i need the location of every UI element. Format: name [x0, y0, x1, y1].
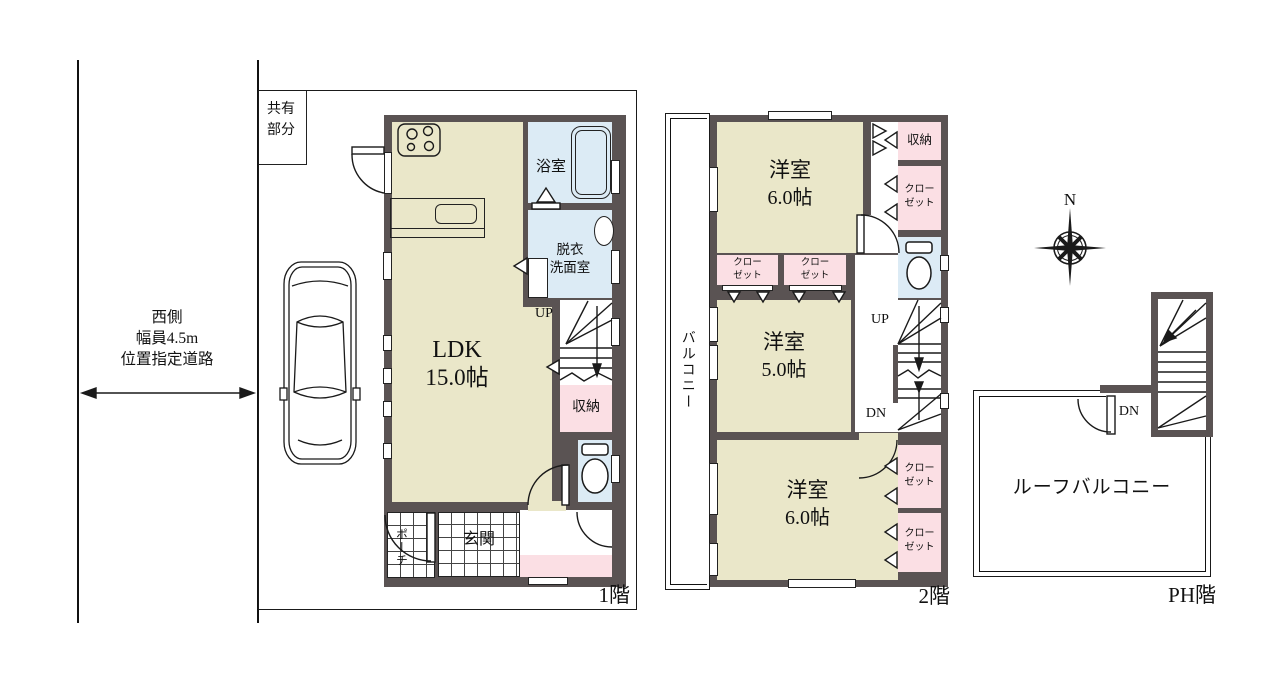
shared-area: 共有部分 [259, 91, 307, 165]
road-width-arrow [82, 388, 254, 398]
room-middle-name: 洋室 [717, 330, 851, 355]
roof-balcony-label: ルーフバルコニー [992, 477, 1192, 500]
closet-track [789, 285, 842, 291]
closet-south-lower-label: クロー ゼット [898, 527, 941, 555]
closet-label-line2: ゼット [898, 476, 941, 490]
closet-label-line1: クロー [898, 183, 941, 197]
room-ldk [392, 122, 523, 502]
north-label: N [1054, 190, 1086, 210]
counter-edge [391, 228, 484, 237]
floorplan: 西側 幅員4.5m 位置指定道路 共有部分 車庫 浴室 脱衣 洗面室 [0, 0, 1280, 684]
closet-track [722, 285, 773, 291]
kitchen-sink [435, 204, 477, 224]
window [768, 111, 832, 120]
stair-wall-stub [893, 345, 898, 403]
washroom-label-line1: 脱衣 [528, 241, 612, 259]
window [611, 318, 620, 346]
ph-stairwell [1158, 299, 1206, 430]
washroom-label-line2: 洗面室 [528, 259, 612, 277]
kitchen-counter [390, 198, 485, 238]
room-north-name: 洋室 [717, 158, 863, 183]
up-label-2f: UP [864, 312, 896, 329]
toilet-2f [898, 237, 941, 298]
window [383, 368, 392, 384]
dn-label-2f: DN [860, 406, 892, 423]
window [709, 543, 718, 576]
corridor-north [871, 122, 898, 253]
road-edge-line [77, 60, 79, 623]
bathtub-inner [575, 130, 607, 195]
closet-label-line2: ゼット [717, 270, 778, 283]
closet-label-line2: ゼット [898, 197, 941, 211]
road-label: 西側 幅員4.5m 位置指定道路 [96, 308, 238, 371]
storage-2f-label: 収納 [898, 133, 941, 148]
bathroom-label: 浴室 [528, 158, 574, 176]
landing-wall [1100, 385, 1152, 393]
closet-north-label: クロー ゼット [898, 183, 941, 211]
toilet-1f [578, 440, 612, 502]
storage-1f-label: 収納 [560, 400, 612, 417]
closet-label-line1: クロー [898, 527, 941, 541]
window [383, 443, 392, 459]
room-ldk-extension [523, 307, 552, 502]
shared-area-label: 共有部分 [265, 99, 297, 141]
window [611, 250, 620, 284]
ldk-name-label: LDK [397, 336, 517, 365]
closet-label-line1: クロー [717, 257, 778, 270]
window [940, 255, 949, 271]
closet-label-line1: クロー [784, 257, 846, 270]
ldk-size-label: 15.0帖 [397, 364, 517, 392]
floor1-label: 1階 [510, 583, 630, 608]
window [940, 393, 949, 409]
road-type-label: 位置指定道路 [96, 350, 238, 371]
dn-label-ph: DN [1110, 404, 1148, 421]
window [383, 401, 392, 417]
closet-label-line1: クロー [898, 462, 941, 476]
road-side-label: 西側 [96, 308, 238, 329]
up-label-1f: UP [529, 306, 559, 323]
window [611, 160, 620, 194]
floor2-label: 2階 [830, 584, 950, 609]
stairwell-2f [898, 300, 941, 432]
closet-mid-right-label: クロー ゼット [784, 257, 846, 283]
window [383, 335, 392, 351]
compass-icon [1034, 208, 1106, 286]
closet-label-line2: ゼット [784, 270, 846, 283]
washroom-label: 脱衣 洗面室 [528, 241, 612, 276]
balcony-label: バルコニー [678, 310, 695, 430]
porch-label: ポーチ [394, 518, 408, 576]
entrance-label: 玄関 [438, 530, 520, 549]
floorph-label: PH階 [1096, 583, 1216, 608]
room-north-size: 6.0帖 [717, 186, 863, 210]
garage-label: 車庫 [298, 336, 344, 356]
room-south-name: 洋室 [717, 478, 898, 503]
door-opening [384, 152, 392, 194]
window [940, 307, 949, 323]
window [383, 252, 392, 280]
closet-south-upper-label: クロー ゼット [898, 462, 941, 490]
window [611, 455, 620, 483]
bathtub [571, 126, 611, 199]
closet-mid-left-label: クロー ゼット [717, 257, 778, 283]
stairwell-1f [560, 300, 612, 385]
room-south-size: 6.0帖 [717, 506, 898, 530]
hall-1f [520, 510, 612, 555]
room-middle-size: 5.0帖 [717, 358, 851, 382]
closet-label-line2: ゼット [898, 541, 941, 555]
road-width-label: 幅員4.5m [96, 329, 238, 350]
